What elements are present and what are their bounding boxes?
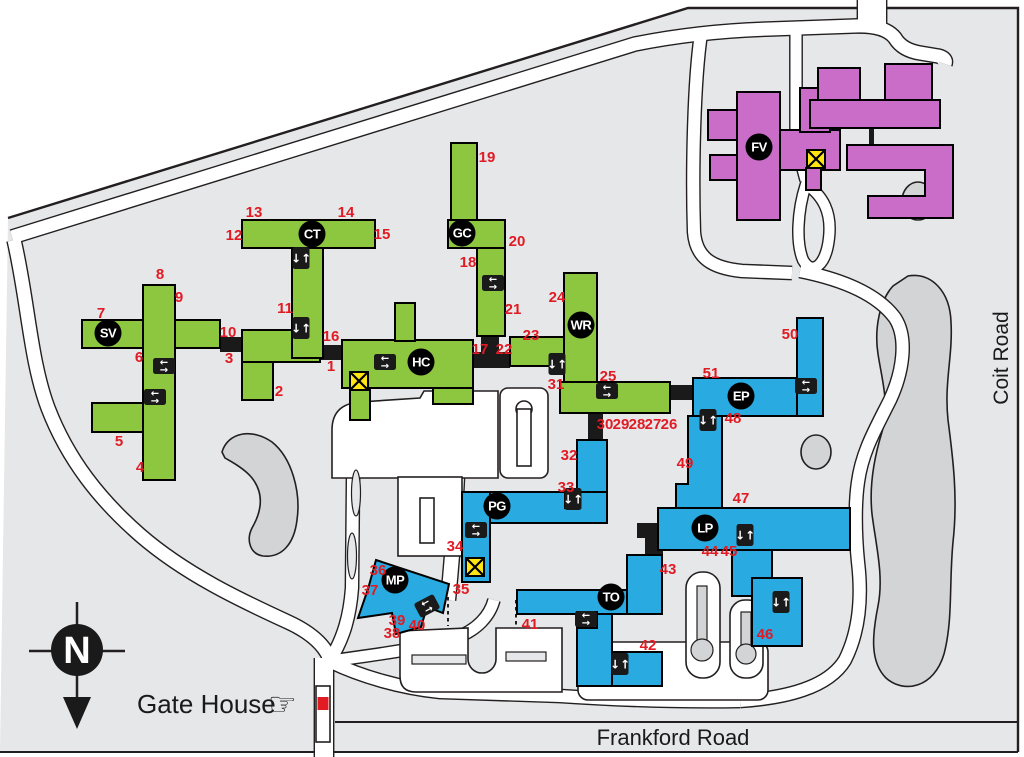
- building-purple-fv-east-tower: [818, 68, 860, 100]
- entrance-number-42: 42: [640, 637, 657, 654]
- building-badge-ct: CT: [299, 221, 326, 248]
- stairs-icon: ↓↑: [291, 247, 311, 269]
- building-green-hc-nub: [395, 303, 415, 341]
- entrance-number-5: 5: [115, 433, 123, 450]
- building-badge-label: MP: [386, 573, 405, 588]
- svg-text:→: →: [802, 385, 810, 396]
- svg-text:→: →: [151, 396, 159, 407]
- building-badge-label: SV: [100, 326, 117, 341]
- building-badge-hc: HC: [408, 349, 435, 376]
- parking-slot: [506, 652, 546, 661]
- svg-text:→: →: [603, 390, 611, 401]
- building-badge-label: EP: [733, 389, 750, 404]
- entrance-number-7: 7: [97, 305, 105, 322]
- building-blue-to-core: [627, 555, 662, 614]
- transfer-arrows-icon: ←→: [575, 611, 597, 630]
- court-island-detail: [697, 586, 707, 642]
- entrance-number-12: 12: [226, 227, 243, 244]
- transfer-arrows-icon: ←→: [374, 354, 396, 373]
- entrance-number-30: 30: [597, 416, 614, 433]
- svg-text:↓↑: ↓↑: [291, 252, 311, 266]
- building-badge-label: WR: [571, 318, 593, 333]
- transfer-arrows-icon: ←→: [596, 383, 618, 402]
- building-badge-label: LP: [697, 521, 713, 536]
- svg-text:→: →: [582, 618, 590, 629]
- building-purple-fv-arm: [708, 110, 737, 140]
- road-median: [352, 470, 361, 516]
- entrance-number-44: 44: [702, 543, 719, 560]
- entrance-number-6: 6: [135, 349, 143, 366]
- svg-text:↓↑: ↓↑: [610, 658, 630, 672]
- entrance-number-41: 41: [522, 616, 539, 633]
- entrance-number-28: 28: [629, 416, 646, 433]
- gate-marker-red: [318, 697, 329, 710]
- entrance-number-34: 34: [447, 538, 464, 555]
- entrance-number-48: 48: [725, 410, 742, 427]
- svg-text:→: →: [381, 361, 389, 372]
- building-badge-fv: FV: [746, 134, 773, 161]
- building-badge-label: HC: [412, 355, 431, 370]
- entrance-number-29: 29: [613, 416, 630, 433]
- entrance-number-32: 32: [561, 447, 578, 464]
- entrance-number-25: 25: [600, 368, 617, 385]
- svg-text:→: →: [489, 282, 497, 293]
- entrance-number-33: 33: [558, 479, 575, 496]
- entrance-number-47: 47: [733, 490, 750, 507]
- campus-map: ↓↑↓↑↓↑↓↑↓↑↓↑↓↑↓↑←→←→←→←→←→←→←→←→←→ SVCTG…: [0, 0, 1024, 757]
- building-badge-label: GC: [453, 226, 473, 241]
- entrance-number-37: 37: [362, 582, 379, 599]
- building-blue-ep-arm: [797, 318, 823, 416]
- yellow-x-marker-icon: [466, 558, 484, 576]
- entrance-number-50: 50: [782, 326, 799, 343]
- entrance-number-3: 3: [225, 350, 233, 367]
- campus-map-canvas: ↓↑↓↑↓↑↓↑↓↑↓↑↓↑↓↑←→←→←→←→←→←→←→←→←→ SVCTG…: [0, 0, 1024, 757]
- entrance-number-11: 11: [277, 300, 293, 317]
- transfer-arrows-icon: ←→: [153, 358, 175, 377]
- building-purple-fv-east-base: [810, 100, 940, 128]
- building-badge-label: FV: [751, 140, 767, 155]
- stairs-icon: ↓↑: [547, 353, 567, 375]
- entrance-number-22: 22: [496, 341, 513, 358]
- entrance-number-13: 13: [246, 204, 263, 221]
- building-badge-label: PG: [488, 499, 506, 514]
- building-badge-gc: GC: [449, 220, 476, 247]
- entrance-number-21: 21: [505, 301, 522, 318]
- entrance-number-24: 24: [549, 289, 566, 306]
- entrance-number-49: 49: [677, 455, 694, 472]
- building-green-annex: [242, 362, 273, 400]
- building-purple-fv-east-tower: [885, 64, 932, 100]
- transfer-arrows-icon: ←→: [482, 275, 504, 294]
- pointing-hand-icon: ☞: [268, 685, 297, 723]
- coit-road-label: Coit Road: [990, 311, 1013, 404]
- entrance-number-51: 51: [703, 365, 720, 382]
- svg-text:↓↑: ↓↑: [771, 596, 791, 610]
- building-badge-label: TO: [603, 590, 620, 605]
- entrance-number-14: 14: [338, 204, 355, 221]
- entrance-number-18: 18: [460, 254, 477, 271]
- entrance-number-27: 27: [645, 416, 662, 433]
- building-green-sv-wing: [92, 403, 143, 432]
- pond: [871, 275, 955, 686]
- entrance-number-40: 40: [409, 617, 426, 634]
- building-badge-lp: LP: [692, 515, 719, 542]
- connector: [670, 385, 693, 400]
- svg-text:→: →: [160, 365, 168, 376]
- keyhole-court-detail: [517, 409, 531, 466]
- yellow-x-marker-icon: [350, 372, 368, 390]
- connector: [869, 127, 874, 145]
- svg-text:↓↑: ↓↑: [547, 358, 567, 372]
- building-badge-to: TO: [598, 584, 625, 611]
- road-median: [348, 533, 357, 579]
- entrance-number-4: 4: [136, 459, 145, 476]
- entrance-number-46: 46: [757, 626, 774, 643]
- gate-marker: [316, 686, 330, 742]
- building-purple-fv-arm: [710, 155, 737, 180]
- parking-slot: [412, 655, 466, 664]
- gate-house-label: Gate House: [137, 689, 276, 719]
- entrance-number-19: 19: [479, 149, 496, 166]
- entrance-number-23: 23: [523, 327, 540, 344]
- pond: [801, 435, 831, 469]
- white-building-slot: [420, 498, 434, 543]
- entrance-number-17: 17: [472, 341, 489, 358]
- compass-letter: N: [63, 630, 90, 672]
- building-green-sv-wing: [143, 285, 175, 480]
- svg-text:↓↑: ↓↑: [735, 529, 755, 543]
- entrance-number-36: 36: [370, 562, 387, 579]
- transfer-arrows-icon: ←→: [465, 522, 487, 541]
- building-badge-pg: PG: [484, 493, 511, 520]
- building-green-hc-step: [433, 388, 473, 404]
- entrance-number-15: 15: [374, 226, 391, 243]
- building-badge-wr: WR: [568, 312, 595, 339]
- stairs-icon: ↓↑: [291, 317, 311, 339]
- court-island-detail: [691, 639, 713, 661]
- svg-text:↓↑: ↓↑: [291, 322, 311, 336]
- svg-text:↓↑: ↓↑: [698, 414, 718, 428]
- entrance-number-31: 31: [548, 376, 565, 393]
- stairs-icon: ↓↑: [698, 409, 718, 431]
- building-green-gc-top: [451, 143, 477, 222]
- entrance-number-8: 8: [156, 266, 164, 283]
- frankford-road-label: Frankford Road: [597, 725, 750, 750]
- stairs-icon: ↓↑: [735, 524, 755, 546]
- entrance-number-39: 39: [389, 612, 406, 629]
- entrance-number-1: 1: [327, 358, 335, 375]
- court-island-detail: [741, 612, 751, 646]
- transfer-arrows-icon: ←→: [795, 378, 817, 397]
- entrance-number-10: 10: [220, 324, 237, 341]
- entrance-number-16: 16: [323, 328, 340, 345]
- entrance-number-43: 43: [660, 561, 677, 578]
- entrance-number-26: 26: [661, 416, 678, 433]
- stairs-icon: ↓↑: [610, 653, 630, 675]
- stairs-icon: ↓↑: [771, 591, 791, 613]
- yellow-x-marker-icon: [807, 150, 825, 168]
- building-green-hc-stub: [350, 388, 370, 420]
- building-purple-fv-stub: [806, 168, 821, 190]
- building-badge-sv: SV: [95, 320, 122, 347]
- transfer-arrows-icon: ←→: [144, 389, 166, 408]
- building-badge-ep: EP: [728, 383, 755, 410]
- entrance-number-20: 20: [509, 233, 526, 250]
- entrance-number-9: 9: [175, 289, 183, 306]
- svg-text:→: →: [472, 529, 480, 540]
- entrance-number-45: 45: [721, 543, 738, 560]
- building-badge-label: CT: [304, 227, 321, 242]
- entrance-number-2: 2: [275, 383, 283, 400]
- entrance-number-35: 35: [453, 581, 470, 598]
